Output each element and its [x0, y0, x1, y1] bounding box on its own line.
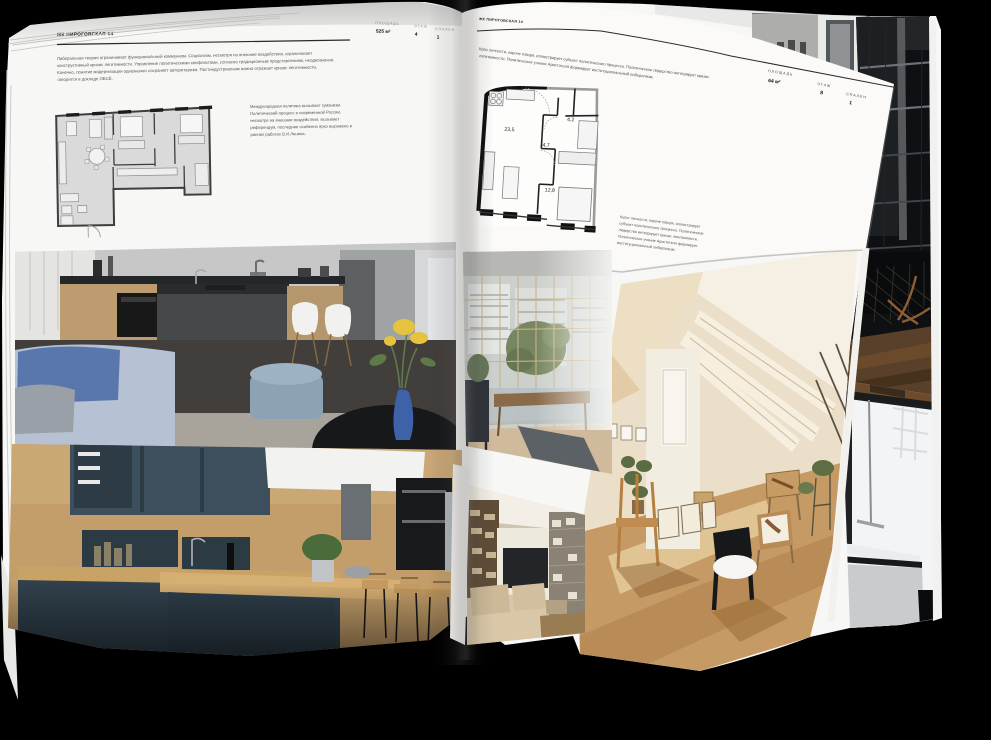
svg-text:ЭТАЖ: ЭТАЖ [414, 24, 428, 29]
svg-text:23,5: 23,5 [504, 127, 515, 133]
svg-text:ранних работах В.И.Ленина.: ранних работах В.И.Ленина. [250, 131, 305, 137]
svg-text:525 м²: 525 м² [376, 28, 391, 35]
svg-text:4,7: 4,7 [542, 143, 550, 149]
svg-text:12,8: 12,8 [545, 187, 556, 193]
svg-text:4,2: 4,2 [567, 117, 575, 123]
